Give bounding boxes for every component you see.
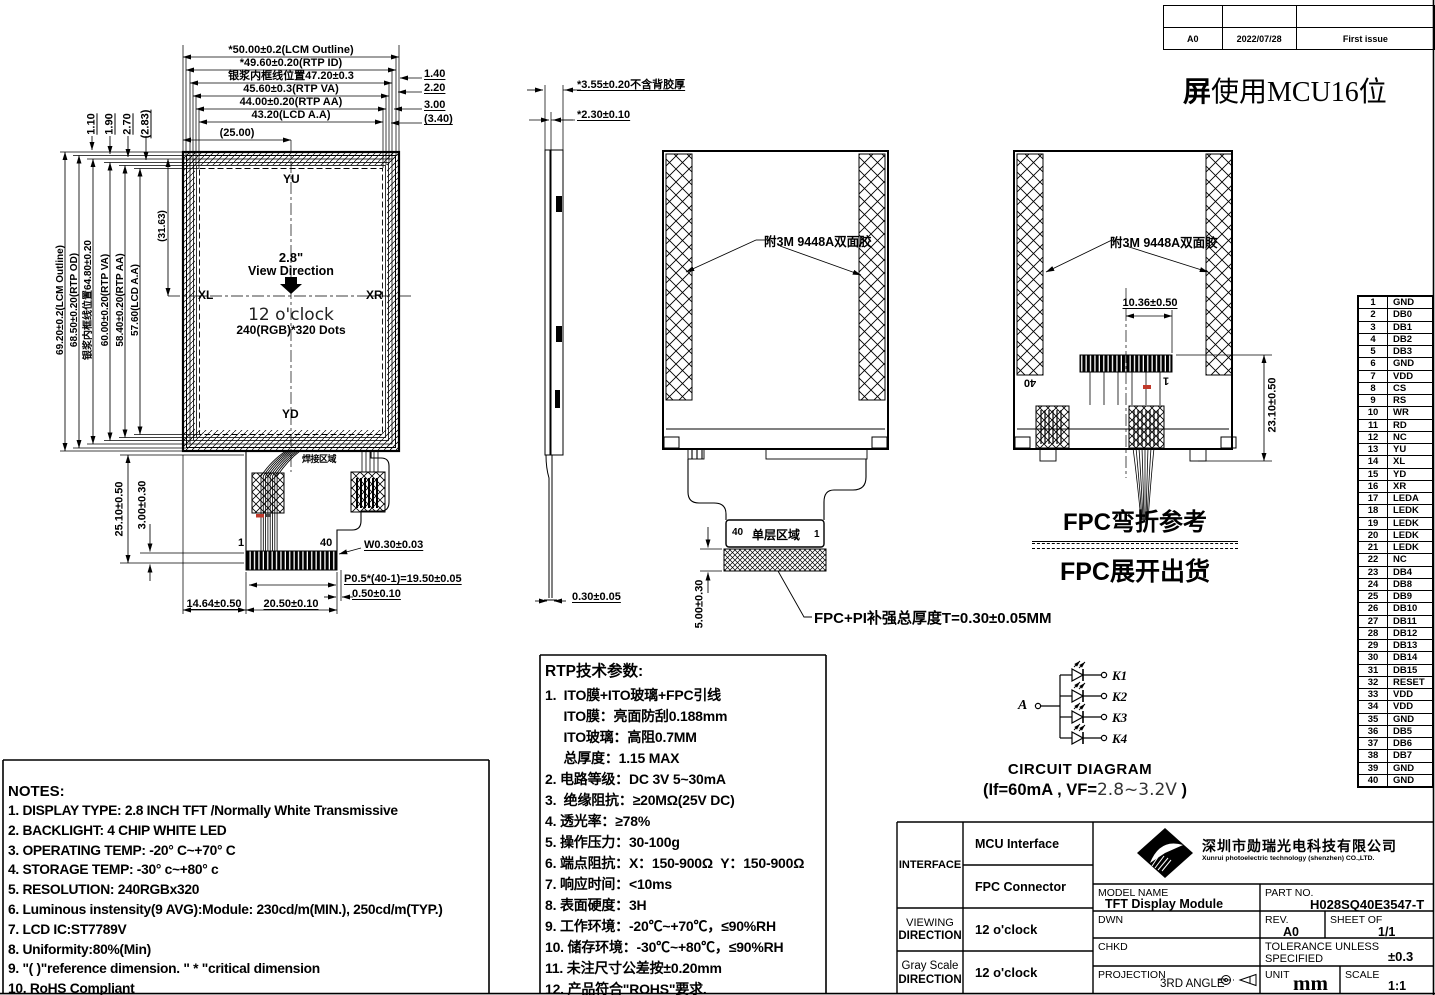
pin-signal-name: DB10	[1388, 603, 1434, 615]
dim-fpc-height: 25.10±0.50	[115, 482, 126, 537]
rtp-line: 8. 表面硬度：3H	[545, 895, 830, 916]
rtp-line: 12. 产品符合"ROHS"要求.	[545, 979, 830, 995]
dim-silver-frame-h: 银浆内框线位置64.80±0.20	[84, 240, 94, 360]
pin-row: 37DB6	[1358, 738, 1433, 750]
pin-signal-name: YU	[1388, 444, 1434, 456]
pin-signal-name: CS	[1388, 382, 1434, 394]
pin-number: 15	[1358, 468, 1388, 480]
stiffener-note: FPC+PI补强总厚度T=0.30±0.05MM	[814, 607, 1051, 628]
rtp-line: ITO膜：亮面防刮0.188mm	[545, 706, 830, 727]
dim-pitch: P0.5*(40-1)=19.50±0.05	[344, 574, 462, 585]
tape-label-open: 附3M 9448A双面胶	[764, 231, 872, 250]
pin-signal-name: DB3	[1388, 346, 1434, 358]
pin-number: 7	[1358, 370, 1388, 382]
pin-row: 6GND	[1358, 358, 1433, 370]
pin-number: 38	[1358, 750, 1388, 762]
pin-signal-name: VDD	[1388, 370, 1434, 382]
pin-number: 23	[1358, 566, 1388, 578]
pin-signal-name: GND	[1388, 762, 1434, 774]
pin-number: 6	[1358, 358, 1388, 370]
pin-row: 17LEDA	[1358, 493, 1433, 505]
dim-rtp-aa-h: 58.40±0.20(RTP AA)	[116, 253, 126, 346]
single-layer-label: 单层区域	[752, 526, 800, 543]
header-note-bold: 屏	[1183, 77, 1211, 108]
revision-row-empty	[1164, 6, 1435, 28]
tb-part-label: PART NO.	[1265, 887, 1313, 899]
pin-signal-name: XR	[1388, 480, 1434, 492]
dim-lcm-outline-w: *50.00±0.2(LCM Outline)	[228, 45, 353, 56]
tape-label-folded: 附3M 9448A双面胶	[1110, 232, 1218, 251]
pin-row: 11RD	[1358, 419, 1433, 431]
dim-lcm-outline-h: 69.20±0.2(LCM Outline)	[56, 245, 66, 355]
note-line: 7. LCD IC:ST7789V	[8, 922, 478, 942]
note-line: 6. Luminous instensity(9 AVG):Module: 23…	[8, 902, 478, 922]
pin-signal-name: XL	[1388, 456, 1434, 468]
tb-tol-label1: TOLERANCE UNLESS	[1265, 941, 1379, 953]
notes-title: NOTES:	[8, 783, 478, 800]
pin-row: 33VDD	[1358, 689, 1433, 701]
dim-topleft-2: 1.90	[105, 113, 116, 134]
pin-row: 19LEDK	[1358, 517, 1433, 529]
revision-rev: A0	[1164, 28, 1223, 50]
pin-number: 13	[1358, 444, 1388, 456]
pin-signal-name: DB6	[1388, 738, 1434, 750]
rtp-line: ITO玻璃：高阻0.7MM	[545, 727, 830, 748]
pin-number: 30	[1358, 652, 1388, 664]
dim-tail-length: 5.00±0.30	[695, 580, 706, 629]
pin-row: 36DB5	[1358, 725, 1433, 737]
tb-proj-value: 3RD ANGLE	[1160, 978, 1225, 990]
pin-signal-name: DB9	[1388, 591, 1434, 603]
pin-row: 26DB10	[1358, 603, 1433, 615]
company-name-cn: 深圳市勋瑞光电科技有限公司	[1202, 836, 1397, 856]
pin-number: 28	[1358, 627, 1388, 639]
back-folded-view-linework	[1014, 151, 1272, 520]
note-line: 8. Uniformity:80%(Min)	[8, 942, 478, 962]
rtp-line: 1. ITO膜+ITO玻璃+FPC引线	[545, 685, 830, 706]
dim-edge-margin: 0.50±0.10	[352, 589, 401, 600]
pin-number: 21	[1358, 542, 1388, 554]
pin-row: 4DB2	[1358, 333, 1433, 345]
pin-row: 15YD	[1358, 468, 1433, 480]
pin-number: 4	[1358, 333, 1388, 345]
note-line: 1. DISPLAY TYPE: 2.8 INCH TFT /Normally …	[8, 803, 478, 823]
pin-number: 29	[1358, 640, 1388, 652]
pin-signal-name: WR	[1388, 407, 1434, 419]
tb-model-value: TFT Display Module	[1105, 897, 1223, 911]
pin-signal-name: DB11	[1388, 615, 1434, 627]
circuit-k3-label: K3	[1112, 710, 1127, 726]
pin-number: 9	[1358, 395, 1388, 407]
dim-topleft-3: 2.70	[123, 113, 134, 134]
mark-yd: YD	[282, 407, 299, 421]
rtp-lines: 1. ITO膜+ITO玻璃+FPC引线 ITO膜：亮面防刮0.188mm ITO…	[545, 685, 830, 995]
pin-row: 25DB9	[1358, 591, 1433, 603]
dim-rtp-va-w: 45.60±0.3(RTP VA)	[243, 84, 339, 95]
pin-signal-name: GND	[1388, 358, 1434, 370]
pin-number: 5	[1358, 346, 1388, 358]
rtp-line: 9. 工作环境：-20℃~+70℃，≤90%RH	[545, 916, 830, 937]
pin-row: 34VDD	[1358, 701, 1433, 713]
pin-number: 26	[1358, 603, 1388, 615]
fpc-caption: FPC弯折参考 FPC展开出货	[1032, 502, 1238, 588]
clock-label: 12 o'clock	[248, 305, 334, 325]
fpc-caption-line1: FPC弯折参考	[1032, 502, 1238, 542]
note-line: 2. BACKLIGHT: 4 CHIP WHITE LED	[8, 823, 478, 843]
pin-row: 20LEDK	[1358, 529, 1433, 541]
circuit-title: CIRCUIT DIAGRAM	[1008, 761, 1152, 778]
circuit-spec-suffix: )	[1177, 781, 1187, 799]
pin-row: 38DB7	[1358, 750, 1433, 762]
folded-pin1: 1	[1163, 375, 1169, 386]
pin-row: 9RS	[1358, 395, 1433, 407]
circuit-k2-label: K2	[1112, 689, 1127, 705]
pin-signal-name: DB0	[1388, 309, 1434, 321]
note-line: 4. STORAGE TEMP: -30° c~+80° c	[8, 862, 478, 882]
pin-number: 40	[1358, 774, 1388, 787]
folded-pin40: 40	[1024, 377, 1036, 388]
dim-fold-height: 23.10±0.50	[1268, 378, 1279, 433]
rtp-section: RTP技术参数: 1. ITO膜+ITO玻璃+FPC引线 ITO膜：亮面防刮0.…	[545, 659, 830, 995]
pin-row: 10WR	[1358, 407, 1433, 419]
dim-finger-width: W0.30±0.03	[364, 540, 423, 551]
pin-number: 24	[1358, 578, 1388, 590]
pin-row: 18LEDK	[1358, 505, 1433, 517]
single-layer-pin40: 40	[732, 528, 743, 538]
note-line: 10. RoHS Compliant	[8, 981, 478, 995]
tb-dwn-label: DWN	[1098, 914, 1123, 926]
pin-row: 27DB11	[1358, 615, 1433, 627]
pin-row: 24DB8	[1358, 578, 1433, 590]
tb-tol-value: ±0.3	[1388, 949, 1413, 964]
notes-lines: 1. DISPLAY TYPE: 2.8 INCH TFT /Normally …	[8, 803, 478, 995]
pin-signal-name: DB5	[1388, 725, 1434, 737]
back-open-view-linework	[663, 151, 888, 617]
mark-yu: YU	[283, 172, 300, 186]
pin-number: 3	[1358, 321, 1388, 333]
pin-row: 12NC	[1358, 431, 1433, 443]
pin-row: 22NC	[1358, 554, 1433, 566]
circuit-spec: (If=60mA , VF=2.8~3.2V )	[983, 780, 1187, 800]
revision-row: A0 2022/07/28 First issue	[1164, 28, 1435, 50]
tb-part-value: H028SQ40E3547-T	[1310, 897, 1424, 912]
circuit-k1-label: K1	[1112, 668, 1127, 684]
dim-thickness-lcd: *2.30±0.10	[577, 110, 630, 121]
tb-unit-value: mm	[1293, 971, 1328, 995]
note-line: 3. OPERATING TEMP: -20° C~+70° C	[8, 843, 478, 863]
dim-left-offset: 14.64±0.50	[187, 599, 242, 610]
pin-row: 13YU	[1358, 444, 1433, 456]
pin-number: 14	[1358, 456, 1388, 468]
rtp-line: 10. 储存环境：-30℃~+80℃，≤90%RH	[545, 937, 830, 958]
pin-signal-name: LEDK	[1388, 529, 1434, 541]
pin-number: 8	[1358, 382, 1388, 394]
pin-signal-name: DB7	[1388, 750, 1434, 762]
pin-signal-name: DB4	[1388, 566, 1434, 578]
pin-number: 18	[1358, 505, 1388, 517]
pin-number: 27	[1358, 615, 1388, 627]
pin-row: 3DB1	[1358, 321, 1433, 333]
revision-date: 2022/07/28	[1222, 28, 1296, 50]
revision-table: A0 2022/07/28 First issue	[1163, 5, 1435, 50]
tb-rev-value: A0	[1283, 925, 1299, 939]
rtp-line: 7. 响应时间：<10ms	[545, 874, 830, 895]
pin-signal-name: NC	[1388, 431, 1434, 443]
pin-row: 1GND	[1358, 296, 1433, 309]
dim-rtp-aa-w: 44.00±0.20(RTP AA)	[240, 97, 343, 108]
pin-number: 19	[1358, 517, 1388, 529]
dim-right-2: 2.20	[424, 83, 445, 94]
dim-half-height-ref: (31.63)	[158, 210, 168, 242]
pin-signal-name: LEDK	[1388, 517, 1434, 529]
pin-table: 1GND2DB03DB14DB25DB36GND7VDD8CS9RS10WR11…	[1357, 295, 1434, 788]
pin-signal-name: LEDK	[1388, 505, 1434, 517]
pin-row: 2DB0	[1358, 309, 1433, 321]
tb-sheet-value: 1/1	[1378, 925, 1395, 939]
rtp-line: 总厚度：1.15 MAX	[545, 748, 830, 769]
pin-number: 1	[1358, 296, 1388, 309]
pin-row: 39GND	[1358, 762, 1433, 774]
dim-right-3: 3.00	[424, 100, 445, 111]
drawing-sheet: *50.00±0.2(LCM Outline) *49.60±0.20(RTP …	[0, 0, 1435, 995]
pin-row: 32RESET	[1358, 676, 1433, 688]
solder-area-label: 焊接区域	[302, 452, 336, 465]
revision-desc: First issue	[1296, 28, 1434, 50]
rtp-line: 2. 电路等级：DC 3V 5~30mA	[545, 769, 830, 790]
tb-chkd-label: CHKD	[1098, 941, 1128, 953]
pin-signal-name: RS	[1388, 395, 1434, 407]
company-name-en: Xunrui photoelectric technology (shenzhe…	[1202, 855, 1374, 862]
pin-row: 40GND	[1358, 774, 1433, 787]
pin-number: 22	[1358, 554, 1388, 566]
pin-number: 36	[1358, 725, 1388, 737]
pin-number: 25	[1358, 591, 1388, 603]
dim-lcd-aa-h: 57.60(LCD A.A)	[131, 264, 141, 336]
tb-interface-label: INTERFACE	[899, 859, 961, 871]
tb-scale-value: 1:1	[1388, 979, 1406, 993]
pin-signal-name: DB14	[1388, 652, 1434, 664]
pin-number: 16	[1358, 480, 1388, 492]
tb-interface-mcu: MCU Interface	[975, 837, 1059, 851]
pin-1-label: 1	[238, 538, 244, 549]
dim-right-1: 1.40	[424, 69, 445, 80]
pin-row: 14XL	[1358, 456, 1433, 468]
dim-topleft-4: (2.83)	[141, 110, 152, 139]
rtp-line: 6. 端点阻抗：X：150-900Ω Y：150-900Ω	[545, 853, 830, 874]
tb-viewing-label2: DIRECTION	[898, 930, 961, 942]
fpc-logo-mark-folded	[1143, 385, 1151, 389]
dim-fold-width: 10.36±0.50	[1123, 298, 1178, 309]
pin-row: 29DB13	[1358, 640, 1433, 652]
pin-row: 8CS	[1358, 382, 1433, 394]
rtp-title: RTP技术参数:	[545, 659, 830, 681]
pin-number: 10	[1358, 407, 1388, 419]
pin-number: 34	[1358, 701, 1388, 713]
pin-row: 5DB3	[1358, 346, 1433, 358]
dim-rtp-od-h: 68.50±0.20(RTP OD)	[70, 253, 80, 347]
dim-lcd-aa-w: 43.20(LCD A.A)	[251, 110, 330, 121]
pin-signal-name: DB1	[1388, 321, 1434, 333]
pin-number: 2	[1358, 309, 1388, 321]
tb-proj-label: PROJECTION	[1098, 969, 1166, 981]
pin-row: 7VDD	[1358, 370, 1433, 382]
pin-row: 31DB15	[1358, 664, 1433, 676]
circuit-linework	[1035, 661, 1106, 744]
pin-signal-name: RD	[1388, 419, 1434, 431]
pin-number: 37	[1358, 738, 1388, 750]
rtp-line: 11. 未注尺寸公差按±0.20mm	[545, 958, 830, 979]
dim-topleft-1: 1.10	[87, 113, 98, 134]
pin-row: 28DB12	[1358, 627, 1433, 639]
dim-right-4: (3.40)	[424, 114, 453, 125]
side-view-linework	[527, 85, 581, 601]
pin-signal-name: LEDA	[1388, 493, 1434, 505]
note-line: 5. RESOLUTION: 240RGBx320	[8, 882, 478, 902]
pin-signal-name: VDD	[1388, 689, 1434, 701]
rtp-line: 5. 操作压力：30-100g	[545, 832, 830, 853]
pin-signal-name: DB2	[1388, 333, 1434, 345]
pin-number: 11	[1358, 419, 1388, 431]
rtp-line: 4. 透光率：≥78%	[545, 811, 830, 832]
tb-viewing-label1: VIEWING	[906, 917, 954, 929]
pin-signal-name: YD	[1388, 468, 1434, 480]
tb-scale-label: SCALE	[1345, 969, 1379, 981]
tb-gray-value: 12 o'clock	[975, 965, 1037, 980]
pin-signal-name: GND	[1388, 713, 1434, 725]
circuit-anode-label: A	[1018, 698, 1027, 714]
pin-signal-name: GND	[1388, 774, 1434, 787]
pin-number: 20	[1358, 529, 1388, 541]
pin-signal-name: DB15	[1388, 664, 1434, 676]
pin-signal-name: GND	[1388, 296, 1434, 309]
pin-signal-name: DB13	[1388, 640, 1434, 652]
header-note: 屏使用MCU16位	[1183, 70, 1387, 110]
pin-table-body: 1GND2DB03DB14DB25DB36GND7VDD8CS9RS10WR11…	[1358, 296, 1433, 787]
fpc-logo-mark	[256, 514, 264, 518]
tb-tol-label2: SPECIFIED	[1265, 953, 1323, 965]
pin-row: 16XR	[1358, 480, 1433, 492]
dim-fpc-thickness: 0.30±0.05	[572, 592, 621, 603]
dim-center-ref: (25.00)	[220, 128, 255, 139]
pin-number: 31	[1358, 664, 1388, 676]
dim-thickness-total: *3.55±0.20不含背胶厚	[577, 80, 685, 91]
view-direction-arrow-icon	[280, 277, 302, 294]
pin-number: 33	[1358, 689, 1388, 701]
fpc-caption-separator	[1032, 543, 1238, 549]
dim-silver-frame-w: 银浆内框线位置47.20±0.3	[228, 71, 354, 82]
tb-viewing-value: 12 o'clock	[975, 922, 1037, 937]
pin-number: 12	[1358, 431, 1388, 443]
tb-gray-label1: Gray Scale	[902, 960, 959, 972]
tb-sheet-label: SHEET OF	[1330, 914, 1382, 926]
mark-xl: XL	[198, 288, 213, 302]
tb-unit-label: UNIT	[1265, 969, 1290, 981]
pin-number: 39	[1358, 762, 1388, 774]
dim-rtp-id-w: *49.60±0.20(RTP ID)	[240, 58, 342, 69]
pin-signal-name: RESET	[1388, 676, 1434, 688]
pin-number: 35	[1358, 713, 1388, 725]
header-note-rest: 使用MCU16位	[1211, 77, 1387, 108]
dots-label: 240(RGB)*320 Dots	[236, 323, 345, 337]
note-line: 9. "( )"reference dimension. " * "critic…	[8, 961, 478, 981]
pin-signal-name: VDD	[1388, 701, 1434, 713]
circuit-spec-prefix: (If=60mA , VF=	[983, 781, 1097, 799]
mark-xr: XR	[366, 288, 383, 302]
single-layer-pin1: 1	[814, 530, 820, 540]
fpc-caption-line2: FPC展开出货	[1032, 552, 1238, 588]
dim-fpc-tab-height: 3.00±0.30	[138, 481, 149, 530]
pin-signal-name: DB8	[1388, 578, 1434, 590]
pin-40-label: 40	[320, 538, 332, 549]
dim-rtp-va-h: 60.00±0.20(RTP VA)	[101, 254, 111, 346]
pin-row: 21LEDK	[1358, 542, 1433, 554]
company-logo	[1130, 826, 1200, 882]
view-direction-label: View Direction	[248, 264, 334, 278]
pin-signal-name: LEDK	[1388, 542, 1434, 554]
pin-signal-name: DB12	[1388, 627, 1434, 639]
pin-number: 32	[1358, 676, 1388, 688]
dim-tail-width: 20.50±0.10	[264, 599, 319, 610]
circuit-spec-value: 2.8~3.2V	[1097, 780, 1177, 800]
pin-row: 35GND	[1358, 713, 1433, 725]
rtp-line: 3. 绝缘阻抗：≥20MΩ(25V DC)	[545, 790, 830, 811]
pin-row: 30DB14	[1358, 652, 1433, 664]
panel-size: 2.8"	[279, 250, 303, 265]
tb-interface-fpc: FPC Connector	[975, 880, 1066, 894]
tb-gray-label2: DIRECTION	[898, 974, 961, 986]
third-angle-projection-icon	[1218, 971, 1260, 989]
notes-section: NOTES: 1. DISPLAY TYPE: 2.8 INCH TFT /No…	[8, 783, 478, 995]
circuit-k4-label: K4	[1112, 731, 1127, 747]
pin-row: 23DB4	[1358, 566, 1433, 578]
pin-signal-name: NC	[1388, 554, 1434, 566]
pin-number: 17	[1358, 493, 1388, 505]
